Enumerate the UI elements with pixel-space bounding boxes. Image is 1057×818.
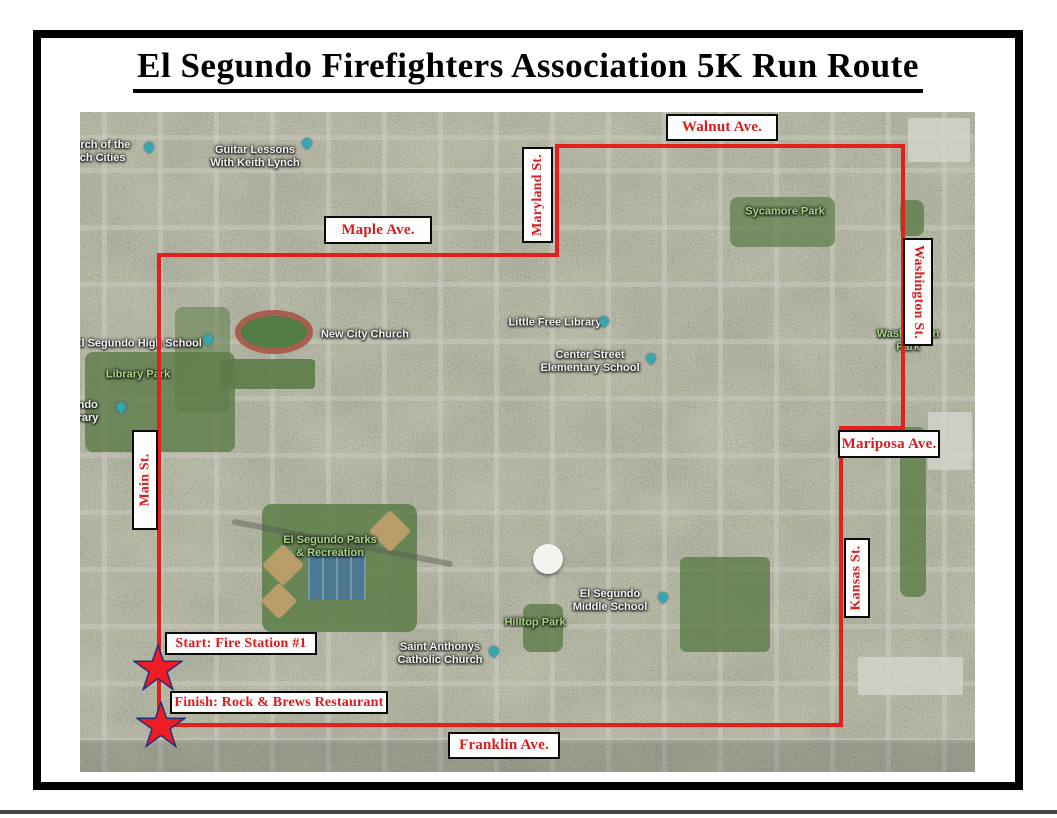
street-label-walnut: Walnut Ave. bbox=[666, 114, 778, 141]
route-map: urch of the ach Cities Guitar Lessons Wi… bbox=[80, 112, 975, 772]
route-maryland-st bbox=[555, 144, 559, 257]
poi-guitar-lessons: Guitar Lessons With Keith Lynch bbox=[210, 144, 299, 170]
poi-line: ndo bbox=[80, 399, 98, 411]
poi-center-street-school: Center Street Elementary School bbox=[540, 349, 639, 375]
finish-star-icon bbox=[136, 701, 186, 751]
poi-line: Catholic Church bbox=[398, 654, 483, 666]
street-label-main: Main St. bbox=[132, 430, 158, 530]
sycamore-park-green bbox=[730, 197, 835, 247]
running-track bbox=[235, 310, 313, 354]
street-label-maple: Maple Ave. bbox=[324, 216, 432, 244]
poi-church-of-beach-cities: urch of the ach Cities bbox=[80, 139, 130, 165]
poi-line: Elementary School bbox=[540, 362, 639, 374]
poi-library-clipped: ndo rary bbox=[80, 399, 98, 425]
poi-line: ach Cities bbox=[80, 152, 126, 164]
route-kansas-st bbox=[839, 426, 843, 727]
street-label-franklin: Franklin Ave. bbox=[448, 732, 560, 759]
poi-line: With Keith Lynch bbox=[210, 157, 299, 169]
page-title: El Segundo Firefighters Association 5K R… bbox=[133, 46, 923, 93]
street-label-washington: Washington St. bbox=[903, 238, 933, 346]
start-star-icon bbox=[133, 644, 183, 694]
poi-line: Center Street bbox=[555, 349, 624, 361]
poi-line: Guitar Lessons bbox=[215, 144, 295, 156]
street-label-mariposa: Mariposa Ave. bbox=[838, 430, 940, 458]
sports-field bbox=[220, 359, 315, 389]
title-bar: El Segundo Firefighters Association 5K R… bbox=[41, 46, 1015, 93]
poi-line: Saint Anthonys bbox=[400, 641, 480, 653]
poi-new-city-church: New City Church bbox=[321, 329, 409, 342]
building-block bbox=[858, 657, 963, 695]
poi-little-free-library: Little Free Library bbox=[509, 317, 602, 330]
street-label-maryland: Maryland St. bbox=[522, 147, 553, 243]
route-maple-ave bbox=[157, 253, 559, 257]
poi-saint-anthonys: Saint Anthonys Catholic Church bbox=[398, 641, 483, 667]
poi-parks-recreation: El Segundo Parks & Recreation bbox=[283, 534, 377, 560]
poi-hilltop-park: Hilltop Park bbox=[504, 617, 565, 630]
finish-label: Finish: Rock & Brews Restaurant bbox=[170, 691, 388, 714]
industrial-building bbox=[908, 118, 970, 162]
page-bottom-divider bbox=[0, 810, 1057, 814]
route-walnut-ave bbox=[555, 144, 905, 148]
poi-line: rary bbox=[80, 412, 98, 424]
poi-sycamore-park: Sycamore Park bbox=[745, 206, 825, 219]
route-franklin-ave bbox=[157, 723, 843, 727]
water-tower bbox=[533, 544, 563, 574]
street-label-kansas: Kansas St. bbox=[844, 538, 870, 618]
middle-school-field bbox=[680, 557, 770, 652]
poi-el-segundo-high-school: El Segundo High School bbox=[80, 338, 202, 351]
poi-middle-school: El Segundo Middle School bbox=[573, 588, 648, 614]
poi-line: Middle School bbox=[573, 601, 648, 613]
tennis-courts bbox=[308, 554, 366, 600]
poi-line: El Segundo Parks bbox=[283, 534, 377, 546]
poi-line: urch of the bbox=[80, 139, 130, 151]
poi-line: & Recreation bbox=[296, 547, 364, 559]
poi-line: El Segundo bbox=[580, 588, 641, 600]
start-label: Start: Fire Station #1 bbox=[165, 632, 317, 655]
